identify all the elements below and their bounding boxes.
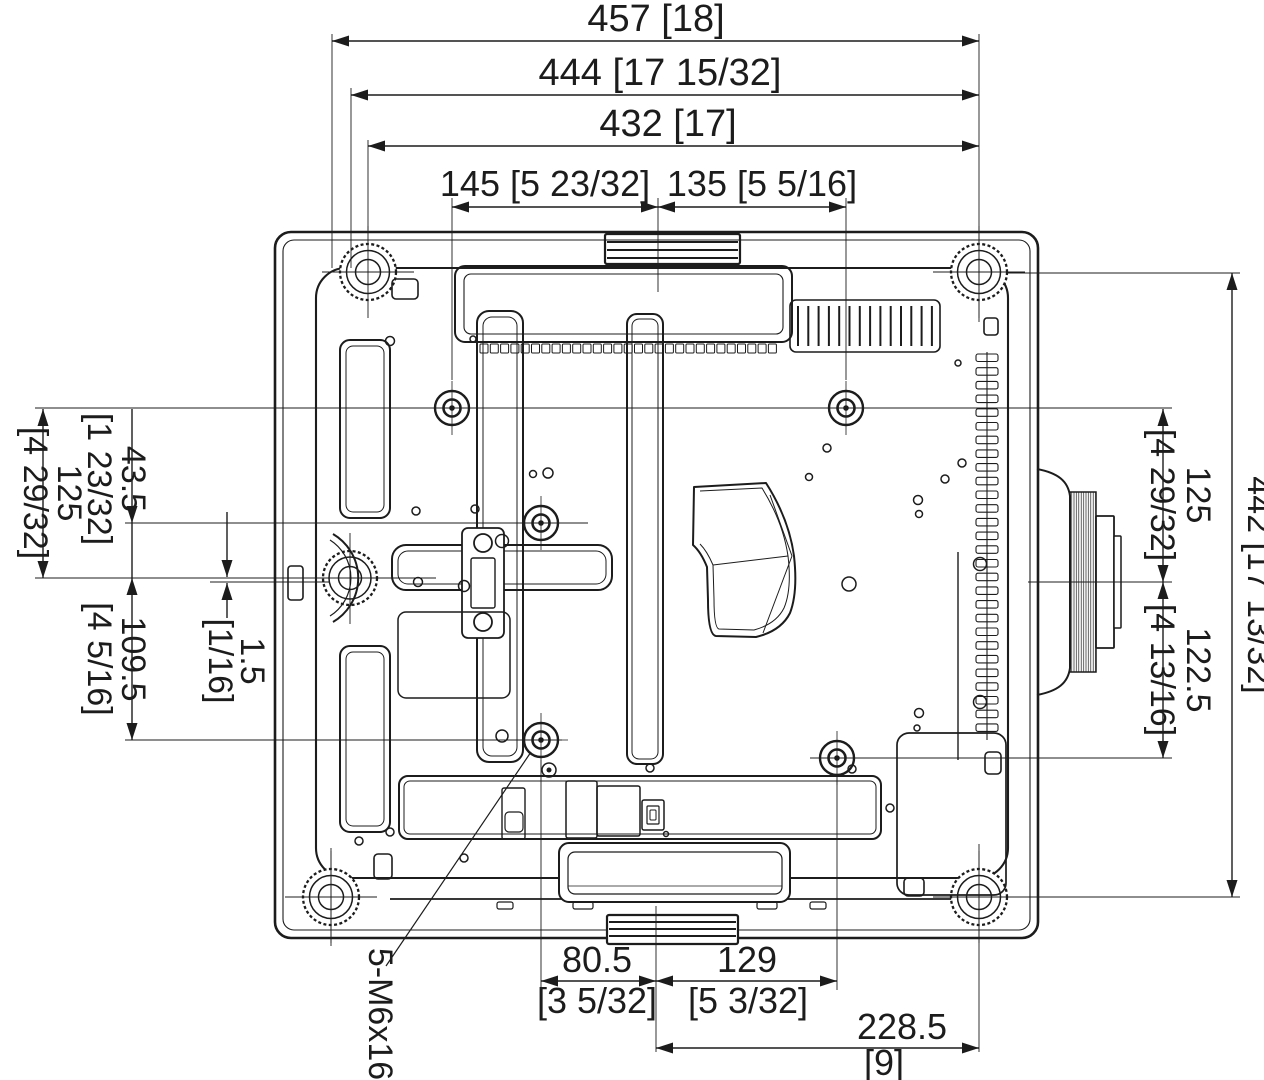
dim-left_foot_to_bottom_hole-value-label: 109.5: [114, 616, 152, 701]
dim-depth_feet-inline-label: 442 [17 13/32]: [1240, 476, 1264, 693]
dim-bottom_center_to_foot-value-label: 228.5: [857, 1006, 947, 1047]
dim-bottom_center_to_right_hole-value-label: 129: [717, 939, 777, 980]
dim-top_hole_left_to_center-inline-label: 145 [5 23/32]: [440, 163, 650, 204]
dim-bottom_center_to_foot-bracket-label: [9]: [864, 1042, 904, 1080]
screw-note-label: 5-M6x16: [361, 948, 399, 1080]
technical-drawing-page: 457 [18]444 [17 15/32]432 [17]145 [5 23/…: [0, 0, 1264, 1080]
dim-left_hole_to_foot-bracket-label: [4 29/32]: [16, 427, 54, 559]
dim-width_overall-inline-label: 457 [18]: [587, 0, 724, 40]
dim-left_centerline_offset-bracket-label: [1/16]: [201, 618, 239, 703]
dim-right_lens_to_bottom_hole-bracket-label: [4 13/16]: [1143, 604, 1181, 736]
dim-right_lens_to_bottom_hole-value-label: 122.5: [1179, 627, 1217, 712]
dim-width_outer-inline-label: 444 [17 15/32]: [539, 52, 782, 94]
dim-bottom_hole_to_center-bracket-label: [3 5/32]: [537, 980, 657, 1021]
dim-bottom_hole_to_center-value-label: 80.5: [562, 939, 632, 980]
projector-body: [275, 232, 1038, 938]
dim-left_center_hole_to_foot-bracket-label: [1 23/32]: [80, 413, 118, 545]
dim-right_hole_to_lens-value-label: 125: [1179, 467, 1217, 524]
dim-left_foot_to_bottom_hole-bracket-label: [4 5/16]: [80, 602, 118, 715]
dim-right_hole_to_lens-bracket-label: [4 29/32]: [1143, 429, 1181, 561]
dim-top_center_to_right_hole-inline-label: 135 [5 5/16]: [667, 163, 857, 204]
dim-width_feet-inline-label: 432 [17]: [599, 103, 736, 145]
projector-bottom-view-drawing: 457 [18]444 [17 15/32]432 [17]145 [5 23/…: [0, 0, 1264, 1080]
dim-left_center_hole_to_foot-value-label: 43.5: [114, 446, 152, 512]
dim-bottom_center_to_right_hole-bracket-label: [5 3/32]: [688, 980, 808, 1021]
